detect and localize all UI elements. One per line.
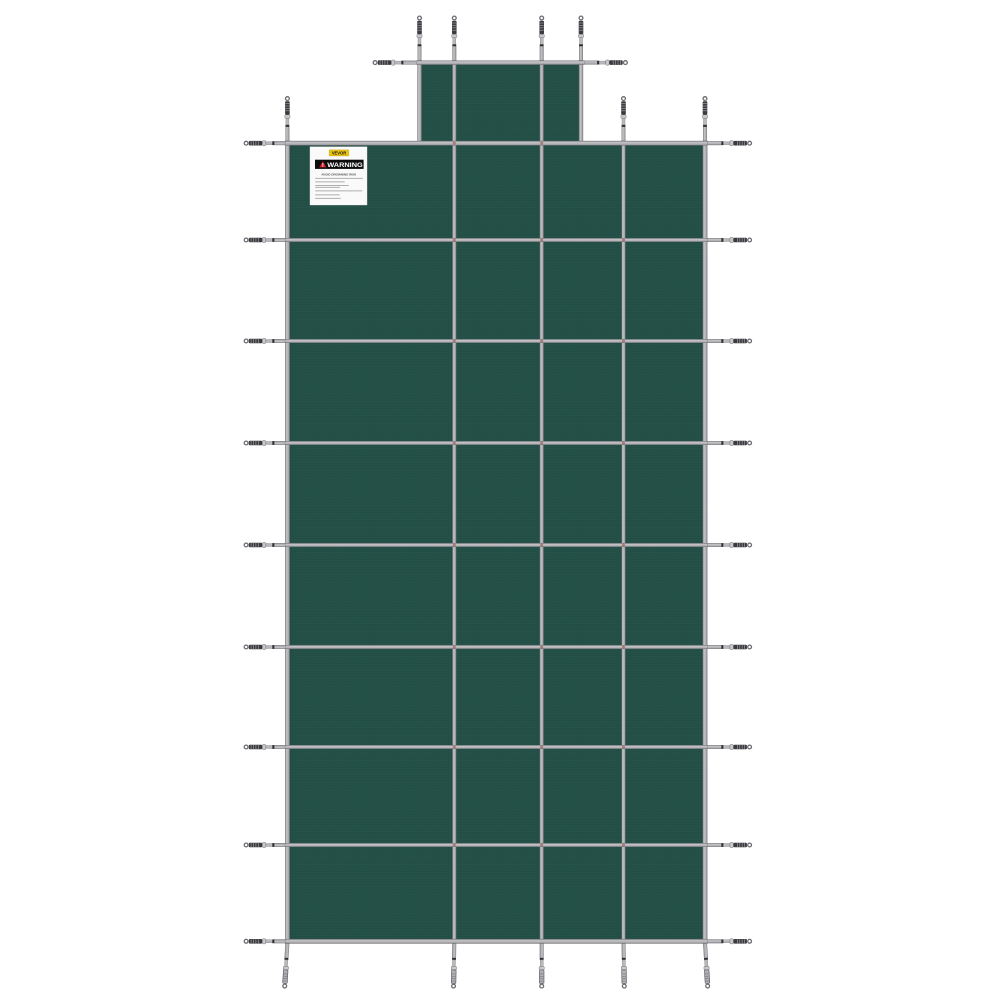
svg-text:WARNING: WARNING bbox=[327, 162, 363, 169]
svg-text:AVOID DROWNING RISK: AVOID DROWNING RISK bbox=[321, 172, 357, 176]
svg-text:VEVOR: VEVOR bbox=[332, 151, 346, 156]
